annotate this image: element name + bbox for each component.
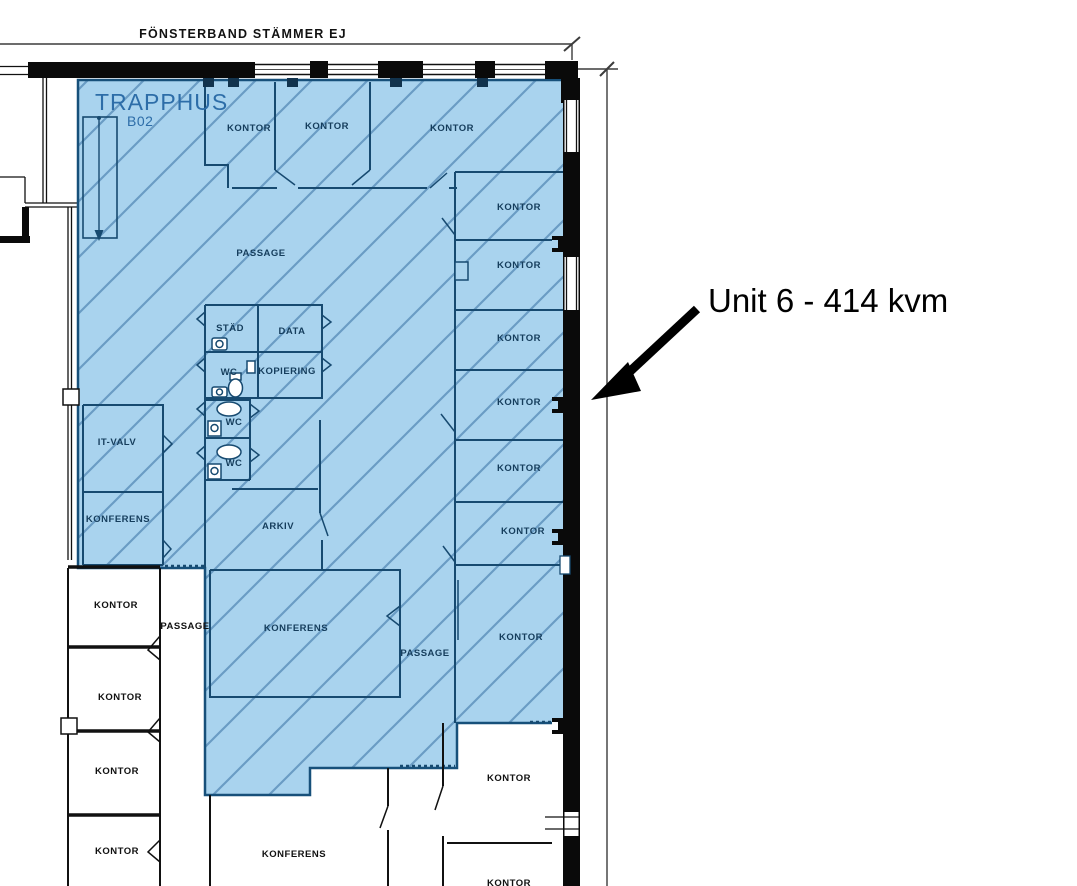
room-label-kontor-right-7: KONTOR <box>499 632 543 643</box>
room-label-kontor-bottom-right-2: KONTOR <box>487 878 531 886</box>
floor-plan-canvas: FÖNSTERBAND STÄMMER EJ TRAPPHUS B02 KONT… <box>0 0 1077 886</box>
window-pillar <box>310 61 328 78</box>
unit-callout: Unit 6 - 414 kvm <box>591 282 948 400</box>
room-label-passage-left: PASSAGE <box>160 621 209 632</box>
room-label-kopiering: KOPIERING <box>258 366 316 377</box>
room-label-wc-2: WC <box>226 417 243 428</box>
room-label-passage-blue: PASSAGE <box>400 648 449 659</box>
room-label-konferens-left: KONFERENS <box>86 514 150 525</box>
room-label-kontor-right-3: KONTOR <box>497 333 541 344</box>
room-label-arkiv: ARKIV <box>262 521 294 532</box>
room-label-trapphus: TRAPPHUS <box>95 89 228 115</box>
room-label-kontor-top-1: KONTOR <box>227 123 271 134</box>
room-label-wc-1: WC <box>221 367 238 378</box>
room-label-konferens-bottom: KONFERENS <box>262 849 326 860</box>
sink-icon-stad <box>212 338 227 350</box>
room-label-kontor-bottom-right-1: KONTOR <box>487 773 531 784</box>
room-label-kontor-right-4: KONTOR <box>497 397 541 408</box>
room-label-kontor-right-5: KONTOR <box>497 463 541 474</box>
room-label-konferens-blue: KONFERENS <box>264 623 328 634</box>
unit-callout-text: Unit 6 - 414 kvm <box>708 282 948 319</box>
floor-plan-svg: FÖNSTERBAND STÄMMER EJ TRAPPHUS B02 KONT… <box>0 0 1077 886</box>
room-label-kontor-top-2: KONTOR <box>305 121 349 132</box>
room-label-kontor-right-6: KONTOR <box>501 526 545 537</box>
window-pillar <box>378 61 423 78</box>
room-label-data: DATA <box>279 326 306 337</box>
exterior-context-walls <box>0 67 78 561</box>
room-label-wc-3: WC <box>226 458 243 469</box>
exterior-context-thick-stubs <box>0 207 30 243</box>
door-leaf-kopiering <box>247 361 255 373</box>
room-label-kontor-left-2: KONTOR <box>98 692 142 703</box>
dimension-line-top <box>0 44 572 60</box>
room-label-stad: STÄD <box>216 323 244 334</box>
window-markers-left <box>61 389 79 734</box>
room-label-kontor-left-4: KONTOR <box>95 846 139 857</box>
unit-callout-arrow-shaft <box>624 309 697 377</box>
top-note-text: FÖNSTERBAND STÄMMER EJ <box>139 26 347 41</box>
stairwell-code: B02 <box>127 113 153 129</box>
sink-icon-wc1 <box>212 387 227 397</box>
room-label-kontor-left-1: KONTOR <box>94 600 138 611</box>
room-label-passage-main: PASSAGE <box>236 248 285 259</box>
window-pillar <box>475 61 495 78</box>
dimension-line-right <box>578 69 618 886</box>
room-label-kontor-right-2: KONTOR <box>497 260 541 271</box>
room-label-kontor-top-3: KONTOR <box>430 123 474 134</box>
room-label-kontor-right-1: KONTOR <box>497 202 541 213</box>
room-label-it-valv: IT-VALV <box>98 437 137 448</box>
room-label-kontor-left-3: KONTOR <box>95 766 139 777</box>
